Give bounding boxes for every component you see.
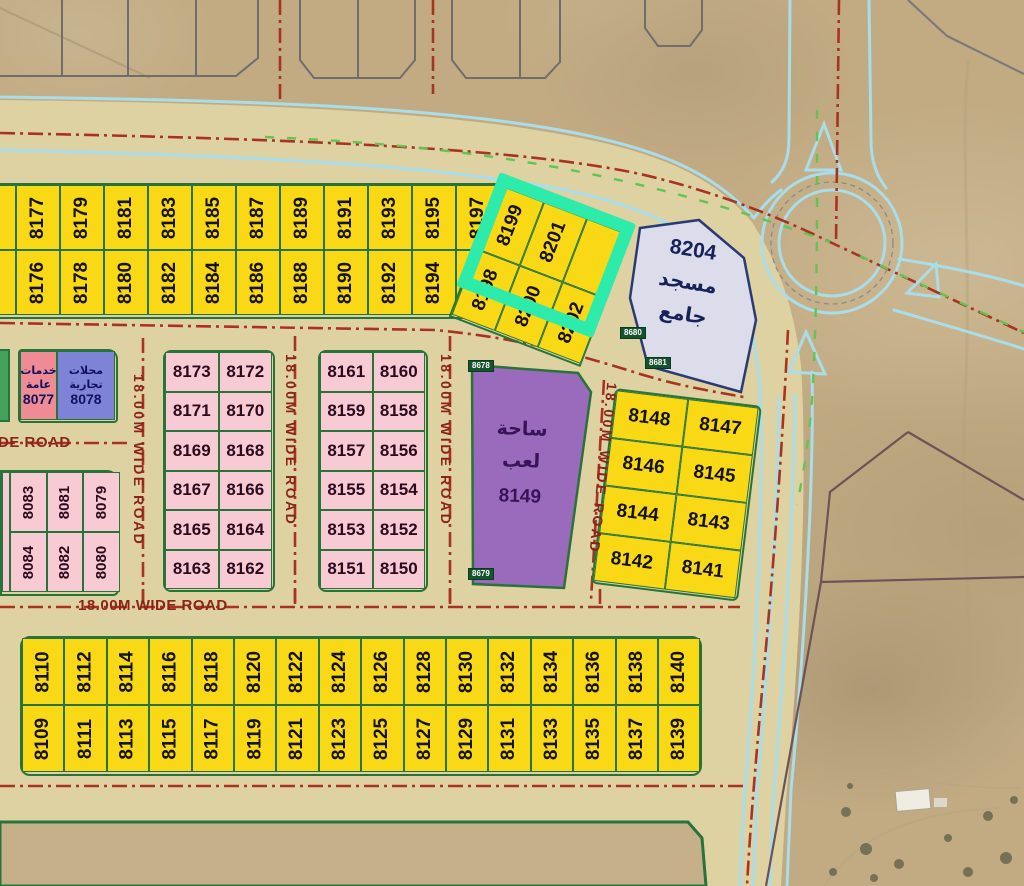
plot-number: 8125 <box>371 717 393 759</box>
plot-8165: 8165 <box>165 510 219 550</box>
block-pink-west: 8173817281718170816981688167816681658164… <box>163 350 275 592</box>
plot-number: 8189 <box>291 196 313 238</box>
plot-8187: 8187 <box>236 185 280 250</box>
plot-number: 8115 <box>159 718 181 759</box>
plot-number: 8174 <box>0 261 5 303</box>
plot-number: 8191 <box>335 196 357 238</box>
plot-8191: 8191 <box>324 185 368 250</box>
plot-8078: محلات تجارية 8078 <box>57 351 115 420</box>
plot-number: 8084 <box>20 545 37 578</box>
plot-number: 8151 <box>327 559 365 579</box>
plot-8152: 8152 <box>373 510 426 550</box>
plot-8184: 8184 <box>192 250 236 315</box>
south-block-boundary <box>0 822 706 886</box>
road-label-left-partial: DE ROAD <box>0 434 71 451</box>
plot-number: 8128 <box>414 650 436 692</box>
plot-number: 8117 <box>202 718 224 759</box>
plot-number: 8118 <box>202 651 224 692</box>
block-yellow-east: 81488147814681458144814381428141 <box>591 388 762 602</box>
plot-8177: 8177 <box>16 185 60 250</box>
plot-number: 8194 <box>423 261 445 303</box>
plot-number: 8183 <box>159 196 181 238</box>
plot-8193: 8193 <box>368 185 412 250</box>
plot-8109: 8109 <box>22 705 64 772</box>
plot-8077-label-1: خدمات <box>20 364 56 377</box>
plot-8121: 8121 <box>276 705 318 772</box>
mosque-label: 8204 مسجد جامع <box>630 230 746 333</box>
plot-8133: 8133 <box>531 705 573 772</box>
plot-number: 8148 <box>627 405 672 432</box>
plot-number: 8163 <box>173 559 211 579</box>
building <box>895 789 947 812</box>
plot-8158: 8158 <box>373 392 426 432</box>
plot-8192: 8192 <box>368 250 412 315</box>
plot-8118: 8118 <box>192 638 234 705</box>
plot-8164: 8164 <box>219 510 273 550</box>
plot-number: 8112 <box>75 651 97 692</box>
plot-8176: 8176 <box>16 250 60 315</box>
plot-8168: 8168 <box>219 431 273 471</box>
plot-number: 8109 <box>32 717 54 759</box>
plot-8135: 8135 <box>573 705 615 772</box>
plot-number: 8159 <box>327 401 365 421</box>
plot-8128: 8128 <box>404 638 446 705</box>
plot-8167: 8167 <box>165 471 219 511</box>
plot-number: 8142 <box>609 548 654 575</box>
plot-8112: 8112 <box>64 638 106 705</box>
plot-8155: 8155 <box>320 471 373 511</box>
plot-8077: خدمات عامة 8077 <box>20 351 57 420</box>
plot-8144: 8144 <box>599 486 676 542</box>
plot-8119: 8119 <box>234 705 276 772</box>
plot-8123: 8123 <box>319 705 361 772</box>
plot-8120: 8120 <box>234 638 276 705</box>
plot-number: 8166 <box>226 480 264 500</box>
plot-number: 8082 <box>56 545 73 578</box>
plot-number: 8150 <box>380 559 418 579</box>
plot-number: 8146 <box>621 453 666 480</box>
plot-number: 8134 <box>541 650 563 692</box>
road-label-v1: 18.00M WIDE ROAD <box>131 374 147 589</box>
plot-8113: 8113 <box>107 705 149 772</box>
plot-8138: 8138 <box>616 638 658 705</box>
plot-number: 8185 <box>203 196 225 238</box>
plot-number: 8161 <box>327 362 365 382</box>
plot-8180: 8180 <box>104 250 148 315</box>
plot-number: 8132 <box>499 650 521 692</box>
plot-8127: 8127 <box>404 705 446 772</box>
plot-8161: 8161 <box>320 352 373 392</box>
survey-tag-8680: 8680 <box>620 327 646 339</box>
plot-8082: 8082 <box>47 532 84 592</box>
plot-number: 8126 <box>371 650 393 692</box>
plot-number: 8154 <box>380 480 418 500</box>
plot-8125: 8125 <box>361 705 403 772</box>
plot-number: 8111 <box>75 718 97 758</box>
plot-number: 8121 <box>287 717 309 759</box>
plot-number: 8135 <box>583 717 605 759</box>
plot-8130: 8130 <box>446 638 488 705</box>
plot-8159: 8159 <box>320 392 373 432</box>
plot-8171: 8171 <box>165 392 219 432</box>
plot-number: 8173 <box>173 362 211 382</box>
plot-number: 8162 <box>226 559 264 579</box>
plot-8077-number: 8077 <box>23 391 54 407</box>
plot-number: 8177 <box>27 196 49 238</box>
green-edge-plot <box>0 349 10 422</box>
plot-number: 8123 <box>329 717 351 759</box>
plot-8136: 8136 <box>573 638 615 705</box>
plot-number: 8083 <box>20 485 37 518</box>
plot-8132: 8132 <box>488 638 530 705</box>
plot-number: 8181 <box>115 196 137 238</box>
plot-8179: 8179 <box>60 185 104 250</box>
plot-number: 8184 <box>203 261 225 303</box>
playground-number: 8149 <box>476 484 563 509</box>
plot-8195: 8195 <box>412 185 456 250</box>
plot-8156: 8156 <box>373 431 426 471</box>
plot-number: 8080 <box>93 545 110 578</box>
plot-8078-label-2: تجارية <box>69 378 102 391</box>
plot-number: 8178 <box>71 261 93 303</box>
plot-number: 8153 <box>327 520 365 540</box>
plot-8129: 8129 <box>446 705 488 772</box>
block-top-row: 8175817481778176817981788181818081838182… <box>0 183 502 319</box>
plot-8151: 8151 <box>320 550 373 590</box>
plot-8122: 8122 <box>276 638 318 705</box>
plot-number: 8129 <box>456 717 478 759</box>
block-bottom-row: 8110810981128111811481138116811581188117… <box>20 636 702 776</box>
plot-8117: 8117 <box>192 705 234 772</box>
road-label-v3: 18.00M WIDE ROAD <box>438 354 454 604</box>
desert-track <box>824 762 1020 886</box>
plot-8077-label-2: عامة <box>26 378 51 391</box>
plot-8141: 8141 <box>664 542 741 598</box>
plot-8114: 8114 <box>107 638 149 705</box>
playground-name-1: ساحة <box>479 417 566 442</box>
plot-number: 8195 <box>423 196 445 238</box>
plot-number: 8114 <box>117 651 139 692</box>
plot-8157: 8157 <box>320 431 373 471</box>
plot-8124: 8124 <box>319 638 361 705</box>
plot-number: 8188 <box>291 261 313 303</box>
plot-number: 8187 <box>247 196 269 238</box>
plot-number: 8116 <box>159 651 181 692</box>
plot-8146: 8146 <box>605 438 682 494</box>
plot-8079: 8079 <box>83 472 120 532</box>
plot-number: 8081 <box>56 485 73 518</box>
plot-number: 8124 <box>329 650 351 692</box>
plot-number: 8122 <box>287 650 309 692</box>
plot-number: 8139 <box>668 717 690 759</box>
plot-8166: 8166 <box>219 471 273 511</box>
plot-8115: 8115 <box>149 705 191 772</box>
plot-number: 8160 <box>380 362 418 382</box>
plot-8111: 8111 <box>64 705 106 772</box>
plot-8182: 8182 <box>148 250 192 315</box>
plot-8145: 8145 <box>676 447 753 503</box>
plot-number: 8165 <box>173 520 211 540</box>
plot-number: 8131 <box>499 717 521 759</box>
plot-8163: 8163 <box>165 550 219 590</box>
plot-8137: 8137 <box>616 705 658 772</box>
cadastral-map: 8175817481778176817981788181818081838182… <box>0 0 1024 886</box>
plot-number: 8143 <box>686 509 731 536</box>
plot-8183: 8183 <box>148 185 192 250</box>
plot-cell <box>2 472 10 592</box>
plot-8185: 8185 <box>192 185 236 250</box>
plot-8140: 8140 <box>658 638 700 705</box>
plot-8148: 8148 <box>611 390 688 446</box>
plot-number: 8140 <box>668 650 690 692</box>
plot-8150: 8150 <box>373 550 426 590</box>
plot-number: 8155 <box>327 480 365 500</box>
plot-number: 8156 <box>380 441 418 461</box>
plot-8169: 8169 <box>165 431 219 471</box>
plot-number: 8136 <box>583 650 605 692</box>
plot-number: 8079 <box>93 485 110 518</box>
plot-number: 8110 <box>32 651 54 692</box>
plot-number: 8179 <box>71 196 93 238</box>
plot-8134: 8134 <box>531 638 573 705</box>
plot-number: 8138 <box>626 650 648 692</box>
plot-8147: 8147 <box>682 399 759 455</box>
plot-8084: 8084 <box>10 532 47 592</box>
plot-8078-label-1: محلات <box>69 364 103 377</box>
plot-number: 8193 <box>379 196 401 238</box>
plot-number: 8120 <box>244 650 266 692</box>
plot-number: 8144 <box>615 500 660 527</box>
plot-8143: 8143 <box>670 494 747 550</box>
plot-8178: 8178 <box>60 250 104 315</box>
plot-number: 8152 <box>380 520 418 540</box>
plot-number: 8141 <box>680 557 725 584</box>
plot-8154: 8154 <box>373 471 426 511</box>
plot-8188: 8188 <box>280 250 324 315</box>
playground-label: ساحة لعب 8149 <box>476 417 565 510</box>
road-label-bottom: 18.00M WIDE ROAD <box>78 597 228 614</box>
plot-8081: 8081 <box>47 472 84 532</box>
playground-name-2: لعب <box>478 449 565 474</box>
plot-8142: 8142 <box>593 533 670 589</box>
plot-number: 8170 <box>226 401 264 421</box>
plot-number: 8147 <box>698 414 743 441</box>
road-label-v2: 18.00M WIDE ROAD <box>283 354 299 604</box>
plot-number: 8145 <box>692 461 737 488</box>
desert-track <box>964 60 969 700</box>
plot-8126: 8126 <box>361 638 403 705</box>
plot-8173: 8173 <box>165 352 219 392</box>
plot-8078-number: 8078 <box>70 391 101 407</box>
plot-number: 8113 <box>117 718 139 759</box>
plot-number: 8119 <box>244 718 266 759</box>
plot-number: 8133 <box>541 717 563 759</box>
survey-tag-8678: 8678 <box>468 360 494 372</box>
plot-number: 8180 <box>115 261 137 303</box>
plot-number: 8186 <box>247 261 269 303</box>
plot-8110: 8110 <box>22 638 64 705</box>
plot-8190: 8190 <box>324 250 368 315</box>
plot-8139: 8139 <box>658 705 700 772</box>
survey-tag-8681: 8681 <box>645 357 671 369</box>
plot-number: 8137 <box>626 717 648 759</box>
plot-number: 8171 <box>173 401 211 421</box>
plot-8194: 8194 <box>412 250 456 315</box>
plot-8186: 8186 <box>236 250 280 315</box>
plot-8181: 8181 <box>104 185 148 250</box>
plot-number: 8164 <box>226 520 264 540</box>
plot-8116: 8116 <box>149 638 191 705</box>
boundary-line-gray <box>908 0 1024 74</box>
plot-8170: 8170 <box>219 392 273 432</box>
plot-8083: 8083 <box>10 472 47 532</box>
plot-8162: 8162 <box>219 550 273 590</box>
plot-number: 8169 <box>173 441 211 461</box>
block-services: خدمات عامة 8077 محلات تجارية 8078 <box>18 349 118 423</box>
plot-number: 8175 <box>0 196 5 238</box>
plot-8160: 8160 <box>373 352 426 392</box>
plot-number: 8127 <box>414 717 436 759</box>
plot-8131: 8131 <box>488 705 530 772</box>
plot-number: 8167 <box>173 480 211 500</box>
plot-8174: 8174 <box>0 250 16 315</box>
plot-number: 8182 <box>159 261 181 303</box>
plot-number: 8176 <box>27 261 49 303</box>
plot-8175: 8175 <box>0 185 16 250</box>
block-pink-southwest: 808380848081808280798080 <box>0 470 119 596</box>
plot-8189: 8189 <box>280 185 324 250</box>
plot-number: 8172 <box>226 362 264 382</box>
survey-tag-8679: 8679 <box>468 568 494 580</box>
plot-number: 8190 <box>335 261 357 303</box>
block-pink-east: 8161816081598158815781568155815481538152… <box>318 350 428 592</box>
plot-8153: 8153 <box>320 510 373 550</box>
plot-number: 8157 <box>327 441 365 461</box>
plot-number: 8130 <box>456 650 478 692</box>
plot-8172: 8172 <box>219 352 273 392</box>
plot-8080: 8080 <box>83 532 120 592</box>
plot-number: 8168 <box>226 441 264 461</box>
plot-number: 8192 <box>379 261 401 303</box>
empty-plot-outlines <box>0 0 702 78</box>
plot-number: 8158 <box>380 401 418 421</box>
